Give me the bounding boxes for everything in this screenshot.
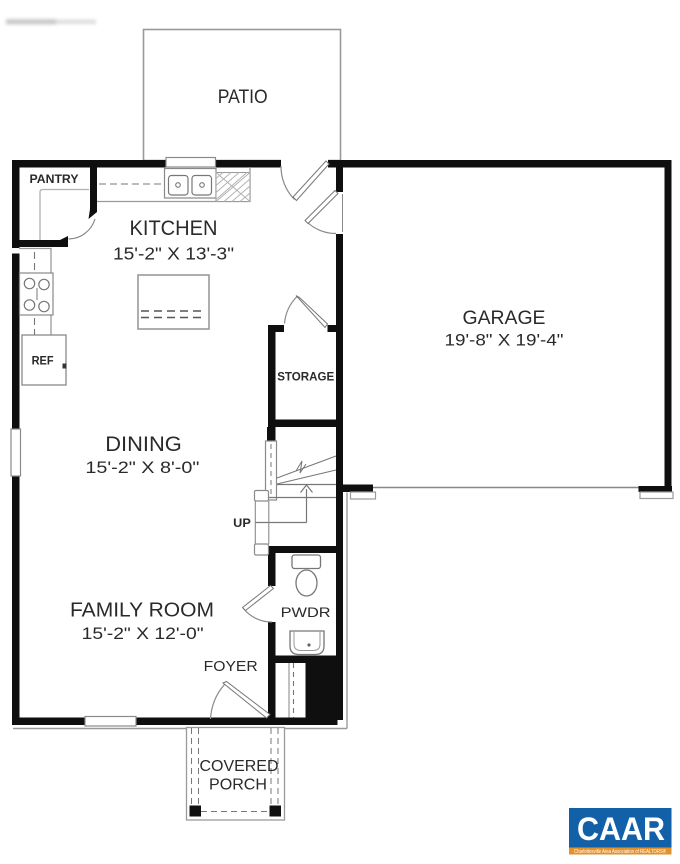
svg-text:PANTRY: PANTRY [30,174,79,186]
svg-text:DINING: DINING [105,433,182,456]
svg-text:REF: REF [32,356,54,368]
svg-text:15'-2" X 12'-0": 15'-2" X 12'-0" [82,624,204,643]
svg-text:KITCHEN: KITCHEN [130,217,218,240]
svg-text:Charlottesville Area Associati: Charlottesville Area Association of REAL… [574,848,666,855]
svg-text:19'-8" X 19'-4": 19'-8" X 19'-4" [445,331,564,350]
svg-text:15'-2" X 13'-3": 15'-2" X 13'-3" [113,244,234,264]
svg-text:PATIO: PATIO [218,87,268,108]
svg-text:FOYER: FOYER [204,658,258,675]
svg-text:CAAR: CAAR [577,811,665,847]
svg-text:PWDR: PWDR [281,604,331,620]
svg-text:FAMILY ROOM: FAMILY ROOM [70,599,214,622]
svg-text:UP: UP [233,518,251,530]
svg-text:PORCH: PORCH [209,777,267,794]
svg-text:15'-2" X 8'-0": 15'-2" X 8'-0" [85,458,199,477]
svg-text:GARAGE: GARAGE [463,308,546,329]
svg-text:COVERED: COVERED [200,758,279,775]
svg-text:STORAGE: STORAGE [277,370,334,384]
